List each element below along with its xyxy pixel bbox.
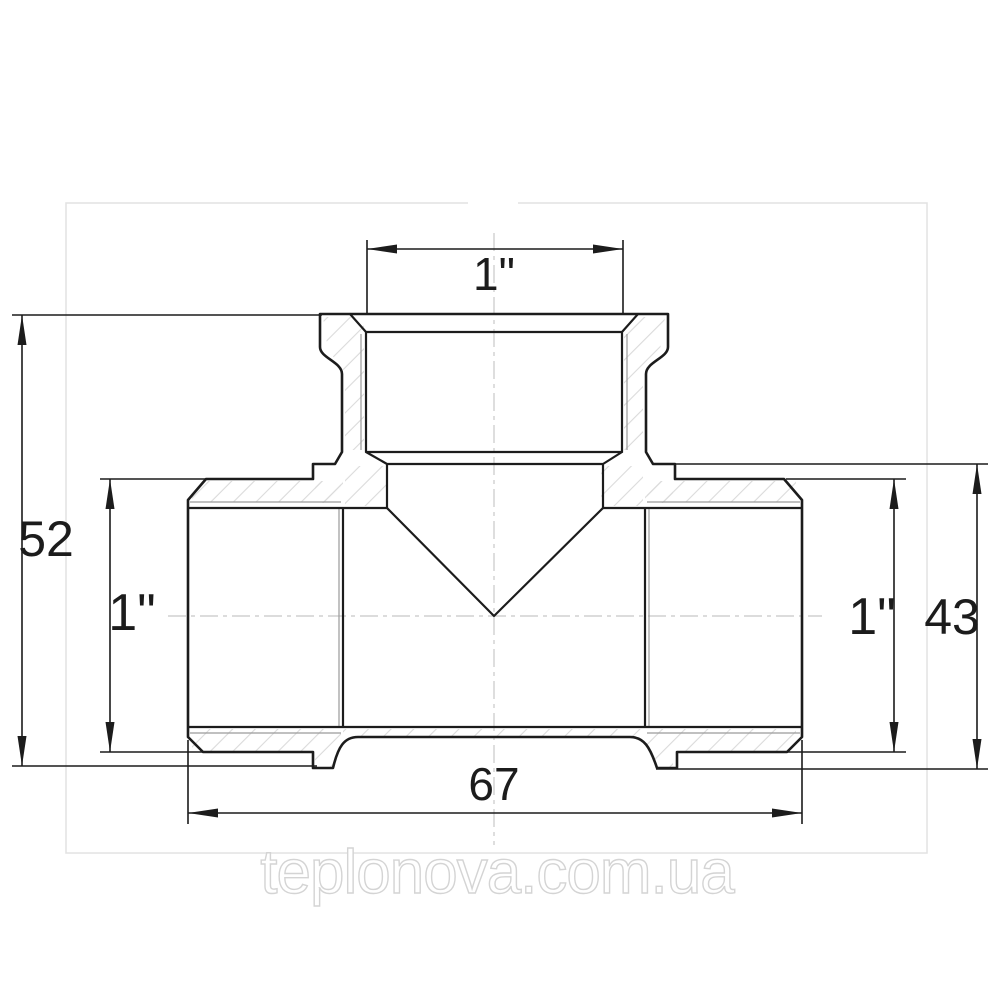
drill-cone-edges (387, 508, 603, 616)
dim-label-overall-height: 52 (18, 511, 74, 567)
fitting-outline (188, 314, 802, 768)
dim-label-right-port: 1" (848, 588, 895, 646)
technical-drawing-page: 1" 52 1" 1" 43 67 teplonova.com.ua (0, 0, 1000, 1000)
run-bore-edges (189, 508, 801, 727)
dim-label-overall-width: 67 (468, 758, 519, 810)
fitting-body (188, 314, 802, 768)
dim-label-left-port: 1" (108, 584, 155, 642)
tee-fitting-drawing: 1" 52 1" 1" 43 67 teplonova.com.ua (0, 0, 1000, 1000)
image-frame (66, 203, 927, 853)
watermark-text: teplonova.com.ua (260, 838, 735, 907)
frame-notch (468, 195, 518, 210)
thread-thin-lines (190, 334, 800, 733)
dim-label-body-height: 43 (924, 589, 980, 645)
dim-label-top-branch: 1" (473, 248, 515, 300)
